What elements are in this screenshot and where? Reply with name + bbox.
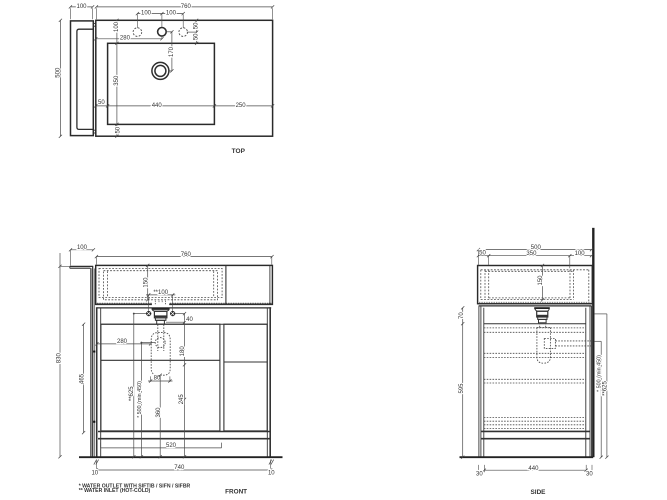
svg-text:280: 280 bbox=[117, 339, 128, 345]
svg-text:150: 150 bbox=[538, 275, 544, 286]
svg-text:440: 440 bbox=[152, 103, 163, 109]
svg-text:10: 10 bbox=[268, 470, 275, 476]
svg-text:** WATER INLET (HOT-COLD): ** WATER INLET (HOT-COLD) bbox=[79, 488, 151, 494]
svg-text:100: 100 bbox=[166, 11, 177, 17]
svg-text:350: 350 bbox=[114, 75, 120, 86]
svg-text:10: 10 bbox=[91, 470, 98, 476]
svg-text:150: 150 bbox=[143, 277, 149, 288]
svg-text:595: 595 bbox=[459, 383, 465, 394]
svg-text:FRONT: FRONT bbox=[225, 489, 247, 496]
svg-text:**100: **100 bbox=[153, 290, 168, 296]
svg-text:TOP: TOP bbox=[232, 148, 246, 155]
svg-text:100: 100 bbox=[77, 245, 88, 251]
svg-text:520: 520 bbox=[166, 443, 177, 449]
svg-text:760: 760 bbox=[181, 252, 192, 258]
svg-text:100: 100 bbox=[114, 21, 120, 32]
svg-text:440: 440 bbox=[528, 466, 539, 472]
svg-text:70: 70 bbox=[459, 312, 465, 319]
svg-text:280: 280 bbox=[120, 36, 131, 42]
svg-text:500: 500 bbox=[55, 67, 61, 78]
svg-text:350: 350 bbox=[526, 251, 537, 257]
svg-text:**625: **625 bbox=[602, 381, 608, 396]
svg-text:50: 50 bbox=[194, 22, 200, 29]
svg-text:760: 760 bbox=[181, 4, 192, 10]
svg-text:245: 245 bbox=[179, 394, 185, 405]
svg-text:360: 360 bbox=[156, 407, 162, 418]
svg-text:740: 740 bbox=[174, 465, 185, 471]
svg-text:180: 180 bbox=[180, 346, 186, 357]
svg-text:170: 170 bbox=[169, 46, 175, 57]
svg-text:**625: **625 bbox=[129, 386, 135, 401]
svg-text:40: 40 bbox=[186, 317, 193, 323]
svg-text:30: 30 bbox=[476, 472, 483, 478]
svg-text:100: 100 bbox=[575, 251, 586, 257]
svg-text:465: 465 bbox=[79, 373, 85, 384]
svg-text:30: 30 bbox=[586, 472, 593, 478]
svg-text:100: 100 bbox=[141, 11, 152, 17]
svg-text:SIDE: SIDE bbox=[531, 489, 547, 496]
svg-text:830: 830 bbox=[56, 353, 62, 364]
svg-text:* 500 (min 450): * 500 (min 450) bbox=[137, 381, 143, 418]
svg-text:50: 50 bbox=[479, 251, 486, 257]
svg-text:50: 50 bbox=[115, 126, 121, 133]
svg-text:100: 100 bbox=[76, 4, 87, 10]
svg-text:250: 250 bbox=[236, 103, 247, 109]
svg-text:50: 50 bbox=[194, 33, 200, 40]
svg-text:50: 50 bbox=[98, 100, 105, 106]
